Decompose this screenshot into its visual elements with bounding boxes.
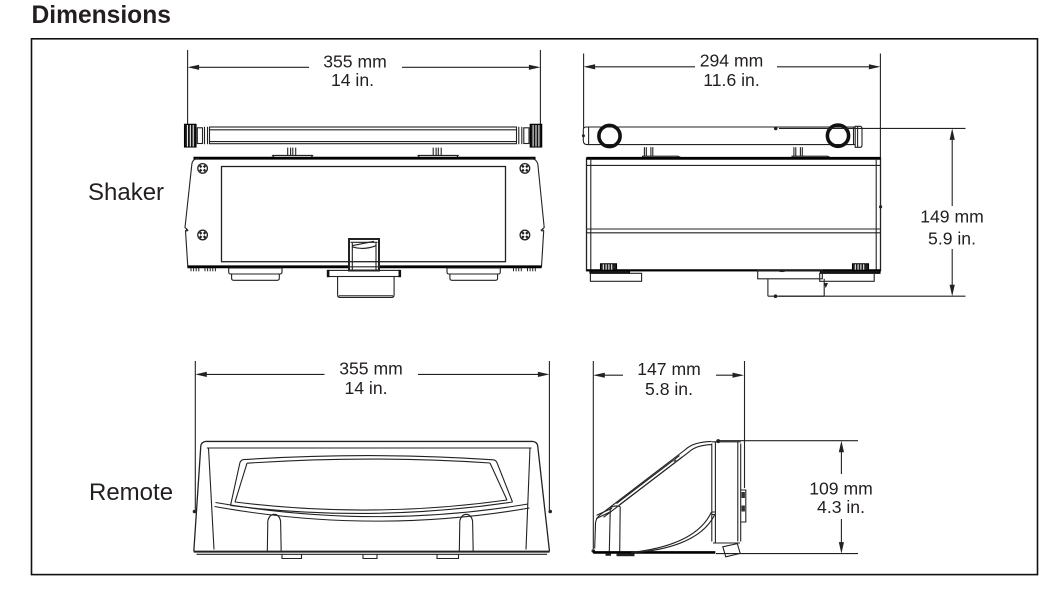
svg-text:149 mm: 149 mm <box>920 206 984 226</box>
svg-text:355 mm: 355 mm <box>339 359 403 379</box>
svg-text:Shaker: Shaker <box>88 179 164 206</box>
svg-text:355 mm: 355 mm <box>323 51 387 71</box>
svg-text:14 in.: 14 in. <box>331 70 374 90</box>
svg-text:294 mm: 294 mm <box>700 50 764 70</box>
svg-text:5.9 in.: 5.9 in. <box>928 229 976 249</box>
svg-text:147 mm: 147 mm <box>637 359 701 379</box>
svg-text:109 mm: 109 mm <box>809 478 873 498</box>
svg-text:Remote: Remote <box>89 479 173 506</box>
svg-text:14 in.: 14 in. <box>344 378 387 398</box>
svg-text:4.3 in.: 4.3 in. <box>817 497 865 517</box>
svg-text:Dimensions: Dimensions <box>32 2 171 29</box>
svg-text:5.8 in.: 5.8 in. <box>645 379 693 399</box>
svg-text:11.6 in.: 11.6 in. <box>703 70 759 90</box>
